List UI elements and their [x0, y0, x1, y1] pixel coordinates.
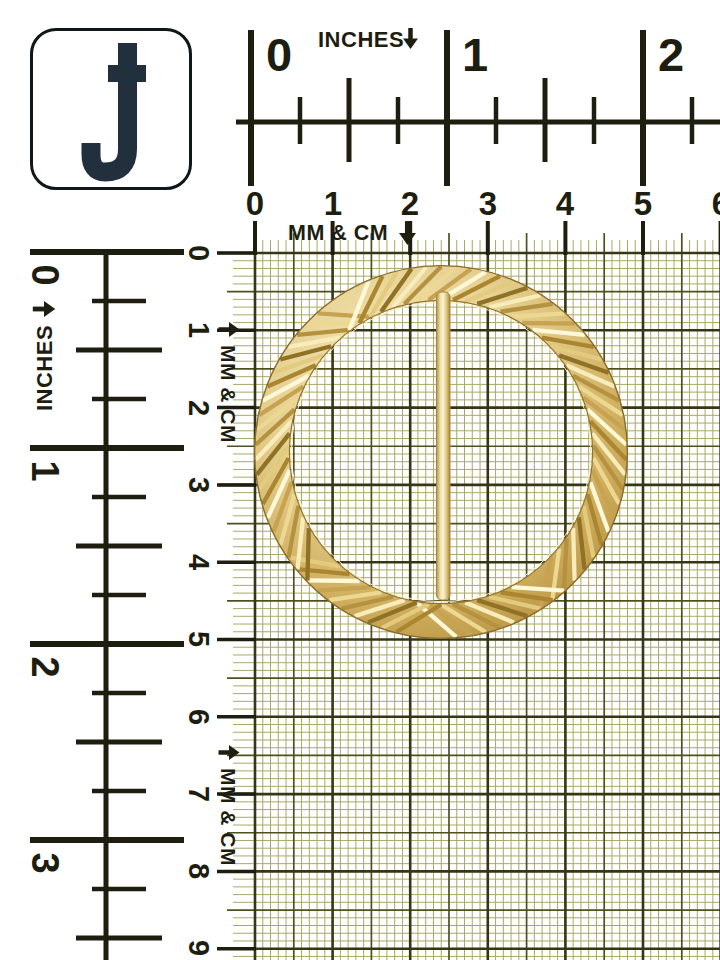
ruler-number: 1 [181, 312, 217, 348]
ruler-number: 2 [21, 643, 69, 691]
right-arrow-icon [217, 322, 241, 337]
ruler-number: 9 [181, 930, 217, 960]
unit-label-inches-left: INCHES [33, 313, 57, 423]
ruler-number: 2 [658, 30, 698, 78]
ruler-number: 1 [21, 447, 69, 495]
ruler-number: 2 [181, 390, 217, 426]
ruler-number: 3 [21, 839, 69, 887]
unit-label-cm-left: MM & CM [217, 763, 239, 871]
ruler-number: 7 [181, 776, 217, 812]
ruler-number: 3 [470, 186, 506, 222]
ruler-number: 5 [625, 186, 661, 222]
right-arrow-icon [217, 745, 241, 760]
buckle-center-bar [437, 292, 451, 600]
ruler-number: 4 [181, 544, 217, 580]
unit-label-cm-left: MM & CM [217, 340, 239, 448]
right-arrow-icon [31, 301, 57, 317]
photo-stage: 0 1 2 INCHES 0 1 2 3 4 5 6 MM & CM 0 1 2… [0, 0, 720, 960]
ruler-number: 1 [462, 30, 502, 78]
ruler-number: 0 [181, 235, 217, 271]
ruler-number: 6 [703, 186, 720, 222]
ruler-number: 3 [181, 467, 217, 503]
down-arrow-icon [403, 28, 418, 49]
ruler-number: 4 [547, 186, 583, 222]
ruler-number: 6 [181, 699, 217, 735]
down-arrow-icon [399, 218, 416, 248]
ruler-number: 0 [21, 251, 69, 299]
ruler-number: 0 [237, 186, 273, 222]
ruler-number: 2 [392, 186, 428, 222]
product-buckle-photo [251, 262, 631, 642]
unit-label-inches-top: INCHES [318, 27, 404, 53]
ruler-number: 0 [266, 30, 306, 78]
unit-label-cm-top: MM & CM [288, 221, 388, 246]
ruler-number: 5 [181, 621, 217, 657]
ruler-number: 8 [181, 853, 217, 889]
ruler-number: 1 [315, 186, 351, 222]
